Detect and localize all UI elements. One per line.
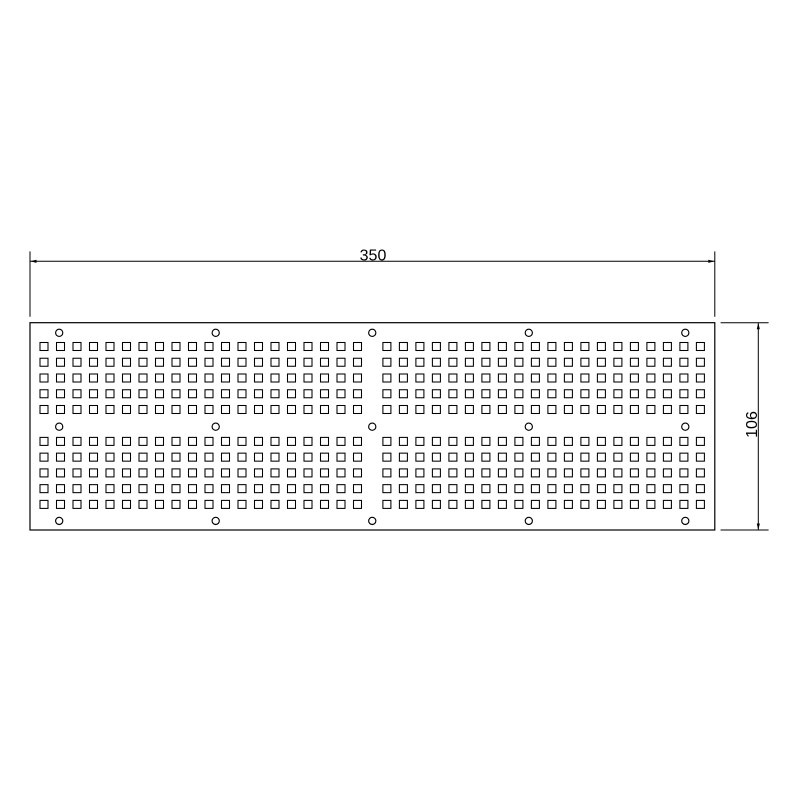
- svg-text:350: 350: [360, 248, 387, 265]
- svg-text:106: 106: [744, 411, 761, 438]
